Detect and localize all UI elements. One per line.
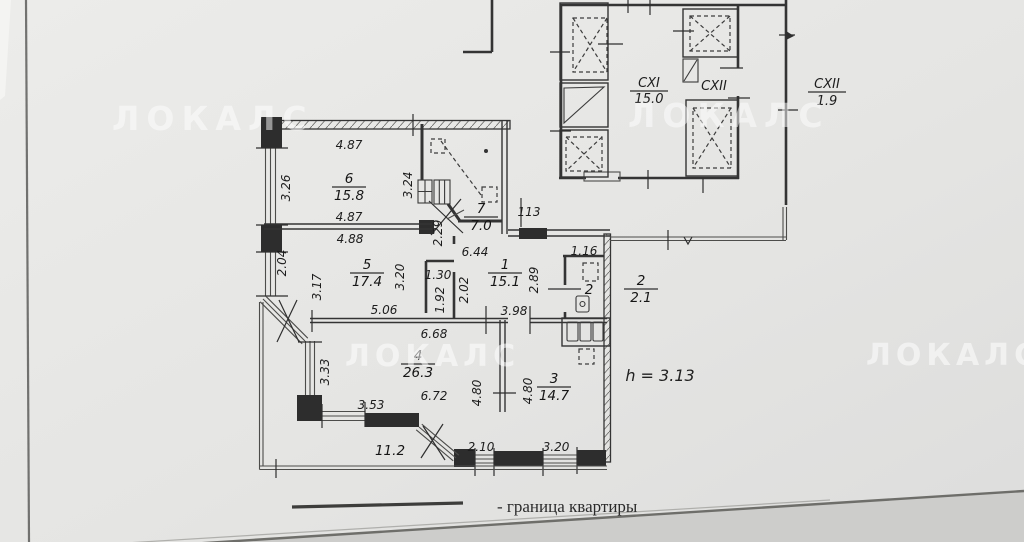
dim-hall-width-top: 6.44 bbox=[462, 245, 489, 259]
floor-plan-svg: 4.87 4.87 4.88 6.44 113 1.16 1.30 5.06 3… bbox=[0, 0, 1024, 542]
cxii-lobby-name: CXII bbox=[701, 79, 727, 94]
watermark: ЛОКАЛС bbox=[345, 339, 520, 374]
east-wall bbox=[604, 234, 611, 462]
dim-room4-width-bottom: 6.72 bbox=[421, 389, 448, 403]
room-3-number: 3 bbox=[550, 371, 559, 387]
dim-hall-height-left: 2.02 bbox=[457, 277, 471, 304]
room-2-area: 2.1 bbox=[630, 290, 651, 306]
dim-closet-width: 1.30 bbox=[425, 268, 452, 282]
room-3-area: 14.7 bbox=[539, 388, 569, 404]
entrance-door bbox=[519, 228, 547, 239]
ceiling-point-icon bbox=[484, 149, 488, 153]
room-5-number: 5 bbox=[363, 257, 372, 273]
dim-balcony-window-west: 3.53 bbox=[358, 398, 385, 412]
dim-west-wall-window: 2.04 bbox=[275, 250, 289, 277]
bathroom-plan-mark: 2 bbox=[585, 282, 594, 298]
room-6-area: 15.8 bbox=[334, 188, 364, 204]
dim-hall-width-bottom: 3.98 bbox=[501, 304, 528, 318]
dim-room5-depth: 3.17 bbox=[310, 273, 324, 300]
dim-room3-height: 4.80 bbox=[521, 377, 535, 404]
room-7-area: 7.0 bbox=[470, 218, 491, 234]
balcony-area: 11.2 bbox=[375, 443, 405, 459]
watermark: ЛОКАЛС bbox=[112, 99, 314, 138]
watermark: ЛОКАЛС bbox=[628, 96, 830, 135]
room-1-area: 15.1 bbox=[490, 274, 520, 290]
room-7-number: 7 bbox=[477, 201, 486, 217]
dim-room5-width-top: 4.88 bbox=[337, 232, 364, 246]
cxi-name: CXI bbox=[638, 76, 660, 91]
cxii-balcony-name: CXII bbox=[814, 77, 840, 92]
dim-room6-width-bottom: 4.87 bbox=[336, 210, 363, 224]
dim-hall-height-right: 2.89 bbox=[527, 267, 541, 294]
dim-room6-width-top: 4.87 bbox=[336, 138, 363, 152]
dim-room3-window-south: 3.20 bbox=[543, 440, 570, 454]
dim-room7-right: 2.29 bbox=[431, 220, 445, 247]
room-6-number: 6 bbox=[345, 171, 354, 187]
ceiling-height-note: h = 3.13 bbox=[625, 366, 694, 385]
dim-bay-window-side: 3.33 bbox=[318, 359, 332, 386]
dim-room6-depth: 3.26 bbox=[279, 174, 293, 201]
dim-room7-depth-left: 3.24 bbox=[401, 172, 415, 199]
room-1-number: 1 bbox=[501, 257, 510, 273]
dim-closet-height: 1.92 bbox=[433, 287, 447, 314]
legend-label: - граница квартиры bbox=[497, 497, 638, 516]
dim-room5-width-bottom: 5.06 bbox=[371, 303, 398, 317]
dim-room4-height: 4.80 bbox=[470, 379, 484, 406]
dim-room5-height-right: 3.20 bbox=[393, 263, 407, 290]
room-5-area: 17.4 bbox=[352, 274, 382, 290]
dim-entry-gap: 113 bbox=[518, 205, 541, 219]
dim-bath-width: 1.16 bbox=[571, 244, 598, 258]
scanned-floor-plan: 4.87 4.87 4.88 6.44 113 1.16 1.30 5.06 3… bbox=[0, 0, 1024, 542]
dim-balcony-window-south: 2.10 bbox=[468, 440, 495, 454]
room-2-number: 2 bbox=[637, 273, 646, 289]
watermark: ЛОКАЛС bbox=[866, 338, 1024, 373]
